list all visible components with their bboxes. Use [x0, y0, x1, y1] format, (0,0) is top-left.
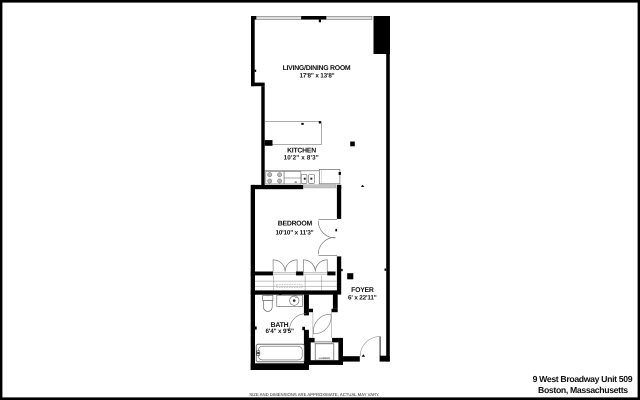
svg-text:6'4" x 9'5": 6'4" x 9'5" [266, 328, 294, 335]
svg-text:BEDROOM: BEDROOM [278, 221, 313, 228]
svg-text:FOYER: FOYER [351, 287, 374, 294]
svg-text:17'8" x 13'8": 17'8" x 13'8" [299, 72, 334, 79]
svg-text:Boston, Massachusetts: Boston, Massachusetts [538, 385, 628, 395]
svg-text:6' x 22'11": 6' x 22'11" [348, 295, 377, 302]
svg-text:SIZE AND DIMENSIONS ARE APPROX: SIZE AND DIMENSIONS ARE APPROXIMATE, ACT… [249, 392, 379, 397]
svg-text:LAUNDRY: LAUNDRY [319, 357, 331, 360]
svg-text:10'10" x 11'3": 10'10" x 11'3" [275, 230, 313, 237]
svg-text:9 West Broadway Unit 509: 9 West Broadway Unit 509 [533, 374, 633, 384]
svg-text:10'2" x 8'3": 10'2" x 8'3" [284, 154, 319, 161]
svg-text:LIVING/DINING ROOM: LIVING/DINING ROOM [283, 65, 351, 72]
